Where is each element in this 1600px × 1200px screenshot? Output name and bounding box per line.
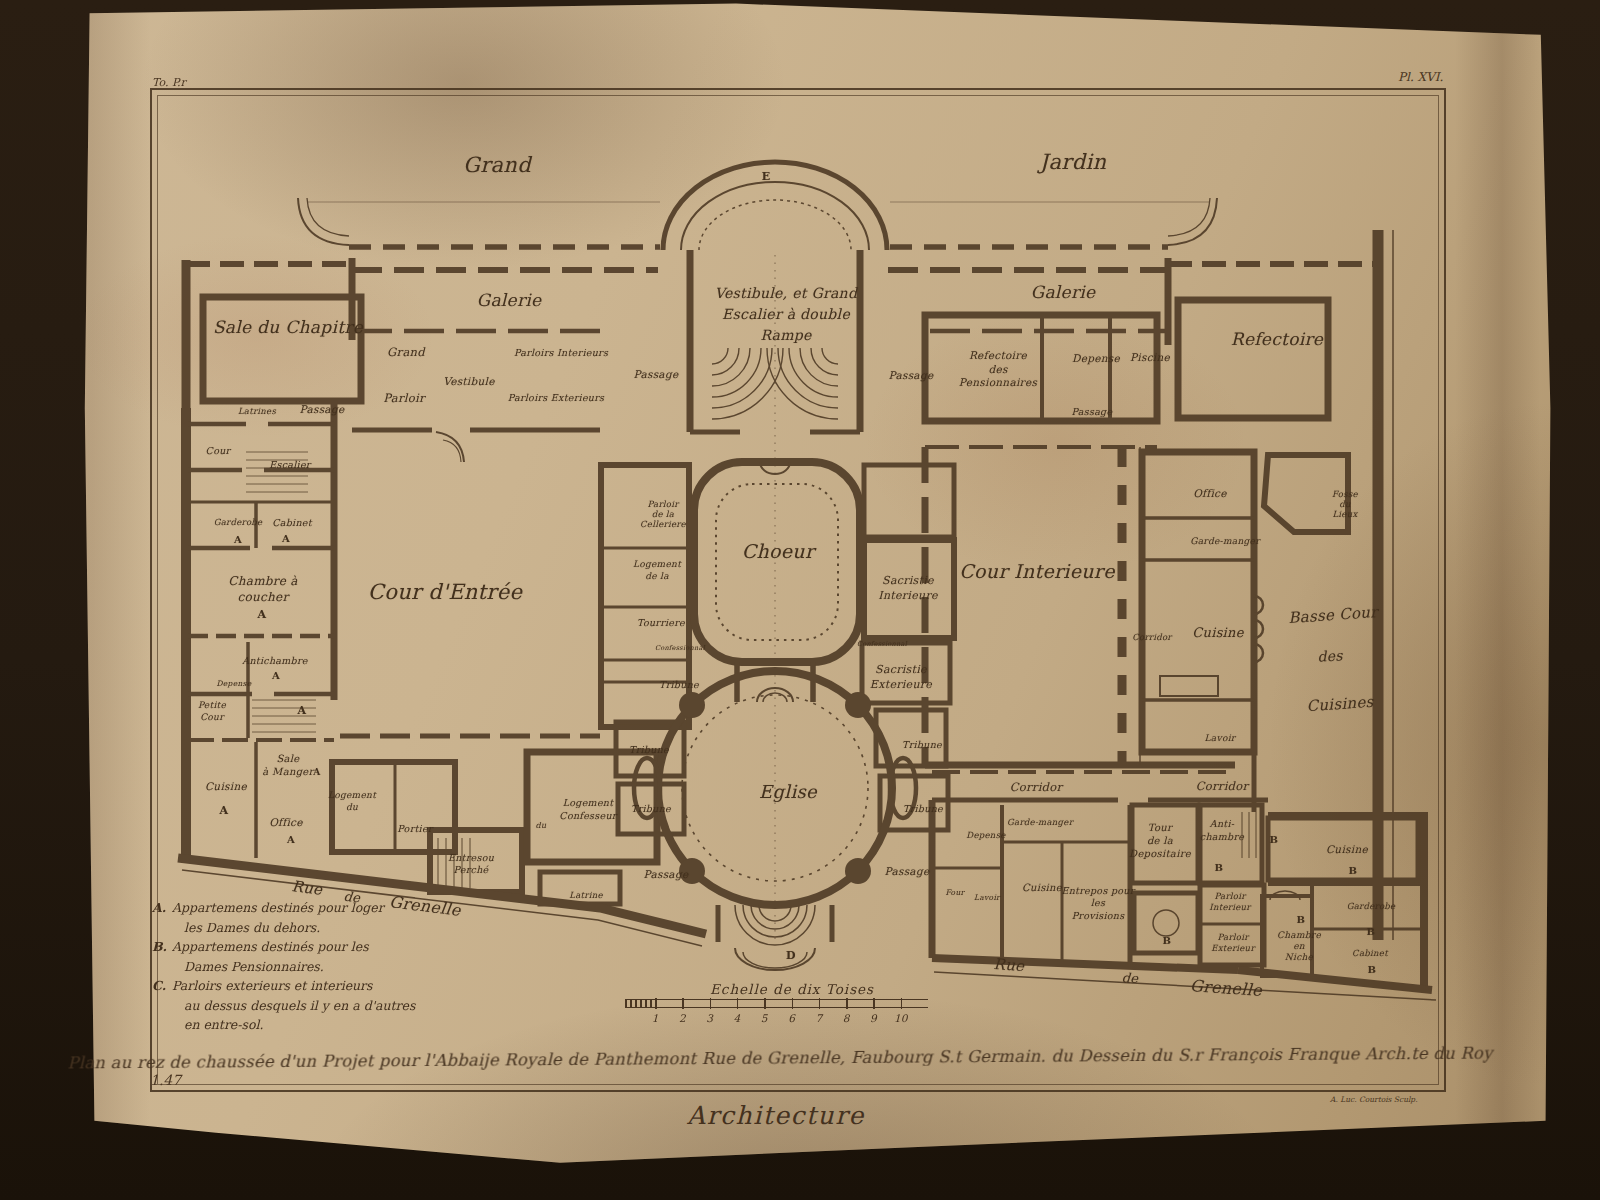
plan-label-grand: Grand (463, 153, 531, 177)
plan-label-corridor: Corridor (1196, 779, 1249, 793)
legend-item-b: B.Appartemens destinés pour lesDames Pen… (152, 937, 482, 976)
plan-label-anti-chambre: Anti- chambre (1200, 817, 1244, 844)
plan-label-parloirs-interieurs: Parloirs Interieurs (514, 347, 608, 358)
plan-label-des: des (1317, 647, 1343, 665)
plan-label-parloir-exterieur: Parloir Exterieur (1211, 932, 1255, 954)
plan-label-cuisine: Cuisine (1326, 843, 1368, 855)
plan-label-tourriere: Tourriere (637, 617, 685, 628)
plan-label-lavoir: Lavoir (1205, 733, 1236, 743)
scale-tick-number: 6 (788, 1012, 795, 1024)
legend-key: A. (152, 898, 172, 937)
plan-label-tour-de-la-depositaire: Tour de la Depositaire (1129, 821, 1191, 860)
plan-label-sacristie-interieure: Sacristie Interieure (878, 573, 938, 604)
plan-legend: A.Appartemens destinés pour logerles Dam… (152, 898, 482, 1035)
plan-label-refectoire: Refectoire (1231, 329, 1323, 349)
plan-label-latrine: Latrine (569, 890, 603, 900)
plan-label-escalier: Escalier (269, 459, 310, 470)
plan-label-a: A (258, 608, 267, 621)
legend-key: B. (152, 937, 172, 976)
plan-label-parloir-de-la-celleriere: Parloir de la Celleriere (640, 499, 686, 530)
plan-label-grand: Grand (387, 345, 425, 359)
plan-label-a: A (282, 533, 290, 544)
plan-label-a: A (313, 767, 320, 777)
plan-label-vestibule: Vestibule (443, 375, 495, 387)
scale-tick (710, 998, 712, 1009)
plan-label-refectoire-des-pensionnaires: Refectoire des Pensionnaires (959, 349, 1037, 390)
plan-label-tribune: Tribune (902, 739, 942, 750)
scale-tick-number: 4 (734, 1012, 741, 1024)
scale-tick-number: 1 (652, 1012, 659, 1024)
plan-label-vestibule-et-grand-escalier-double-rampe: Vestibule, et Grand Escalier à double Ra… (715, 283, 857, 346)
plan-label-a: A (298, 704, 307, 717)
plan-label-jardin: Jardin (1040, 150, 1106, 174)
scale-bar-label: Echelle de dix Toises (710, 981, 874, 997)
plan-label-parloir-interieur: Parloir Interieur (1209, 891, 1250, 913)
plan-label-b: B (1367, 926, 1376, 937)
plan-label-logement-de-la: Logement de la (633, 559, 681, 582)
plan-label-fosse-du-lieux: Fosse du Lieux (1332, 489, 1358, 520)
scale-tick (655, 998, 657, 1009)
plan-label-b: B (1368, 964, 1377, 975)
plan-label-petite-cour: Petite Cour (198, 700, 226, 723)
plan-label-confessionnal: Confessionnal (857, 640, 907, 648)
plan-label-depense: Depense (217, 679, 252, 688)
scale-tick (901, 998, 903, 1009)
plan-label-b: B (1297, 914, 1306, 925)
plan-label-office: Office (269, 816, 303, 828)
plan-label-sale-du-chapitre: Sale du Chapitre (213, 317, 363, 337)
scale-tick-number: 8 (843, 1012, 850, 1024)
plan-label-passage: Passage (644, 868, 689, 880)
plan-label-a: A (220, 804, 229, 817)
plan-label-b: B (1163, 935, 1172, 946)
plan-label-office: Office (1193, 487, 1227, 499)
plan-label-du: du (536, 821, 547, 830)
page-number: 1.47 (150, 1072, 181, 1088)
plan-label-galerie: Galerie (477, 290, 542, 310)
plan-label-latrines: Latrines (238, 406, 276, 416)
plan-label-a: A (234, 534, 242, 545)
scale-bar-subdivisions (625, 1000, 655, 1007)
plan-label-rue: Rue (993, 955, 1025, 975)
scale-tick-number: 7 (815, 1012, 822, 1024)
scale-bar: 12345678910 (625, 999, 928, 1008)
legend-item-c: C.Parloirs exterieurs et interieursau de… (152, 976, 482, 1035)
plan-label-chambre-coucher: Chambre à coucher (228, 573, 298, 605)
plan-label-garde-manger: Garde-manger (1190, 536, 1260, 546)
plan-label-entresou-perch: Entresou Perché (448, 852, 494, 877)
plan-label-cuisine: Cuisine (1192, 625, 1243, 640)
plan-label-corridor: Corridor (1132, 632, 1172, 642)
plan-label-garde-manger: Garde-manger (1007, 817, 1073, 827)
plan-label-parloir: Parloir (383, 391, 424, 405)
scale-tick (792, 998, 794, 1009)
plan-label-b: B (1270, 834, 1279, 845)
plan-label-entrepos-pour-les-provisions: Entrepos pour les Provisions (1061, 885, 1134, 922)
section-title: Architecture (687, 1101, 865, 1130)
scale-tick (819, 998, 821, 1009)
plan-label-cabinet: Cabinet (1352, 948, 1388, 958)
plan-label-garderobe: Garderobe (214, 517, 263, 527)
plan-label-tribune: Tribune (631, 803, 671, 814)
legend-text: Parloirs exterieurs et interieursau dess… (172, 976, 415, 1035)
plan-label-d: D (786, 949, 796, 962)
plan-label-e: E (762, 170, 771, 183)
plan-label-garderobe: Garderobe (1347, 901, 1396, 911)
legend-item-a: A.Appartemens destinés pour logerles Dam… (152, 898, 482, 937)
tome-reference: To. P.r (152, 76, 186, 89)
scale-tick-number: 10 (894, 1012, 907, 1024)
plan-label-cour-d-entr-e: Cour d'Entrée (368, 580, 522, 604)
plan-label-b: B (1215, 862, 1224, 873)
plan-label-depense: Depense (1072, 352, 1120, 364)
legend-key: C. (152, 976, 172, 1035)
plan-label-sacristie-exterieure: Sacristie Exterieure (870, 662, 932, 693)
plan-label-cabinet: Cabinet (272, 517, 312, 528)
scale-tick-number: 3 (706, 1012, 713, 1024)
scale-tick (846, 998, 848, 1009)
scale-tick-number: 9 (870, 1012, 877, 1024)
plan-label-tribune: Tribune (659, 679, 699, 690)
plan-label-a: A (272, 670, 280, 681)
plan-label-a: A (287, 834, 295, 845)
plan-label-tribune: Tribune (903, 803, 943, 814)
plan-label-b: B (1349, 865, 1358, 876)
plan-label-choeur: Choeur (742, 540, 815, 562)
plan-label-eglise: Eglise (759, 781, 817, 802)
plan-label-sale-manger: Sale à Manger (262, 753, 313, 778)
plan-label-passage: Passage (885, 865, 930, 877)
plan-label-passage: Passage (300, 403, 345, 415)
plan-label-corridor: Corridor (1010, 780, 1063, 794)
plan-label-passage: Passage (889, 369, 934, 381)
scale-tick-number: 5 (761, 1012, 768, 1024)
scale-tick (764, 998, 766, 1009)
plan-label-antichambre: Antichambre (242, 655, 308, 666)
plan-label-confessionnal: Confessionnal (655, 644, 705, 652)
plan-label-chambre-en-niche: Chambre en Niche (1277, 930, 1321, 962)
plan-label-passage: Passage (1072, 406, 1113, 417)
plan-label-piscine: Piscine (1130, 351, 1170, 363)
plan-label-logement-confesseur: Logement Confesseur (559, 797, 616, 823)
plan-label-parloirs-exterieurs: Parloirs Exterieurs (508, 392, 605, 403)
legend-text: Appartemens destinés pour logerles Dames… (172, 898, 384, 937)
plan-label-de: de (1121, 970, 1139, 986)
plan-label-four: Four (946, 888, 965, 897)
legend-text: Appartemens destinés pour lesDames Pensi… (172, 937, 369, 976)
plan-label-lavoir: Lavoir (974, 893, 1000, 902)
plan-label-tribune: Tribune (629, 744, 669, 755)
plan-label-cuisine: Cuisine (1022, 882, 1062, 893)
plan-label-depense: Depense (966, 830, 1005, 840)
plan-label-passage: Passage (634, 368, 679, 380)
scale-tick (873, 998, 875, 1009)
plate-number: Pl. XVI. (1398, 70, 1443, 84)
plan-label-cour-interieure: Cour Interieure (959, 560, 1114, 582)
plan-label-portier: Portier (397, 823, 432, 834)
engraver-credit: A. Luc. Courtois Sculp. (1330, 1095, 1418, 1104)
plan-label-galerie: Galerie (1031, 282, 1096, 302)
photographed-engraving: To. P.r Pl. XVI. 1.47 A. Luc. Courtois S… (0, 0, 1600, 1200)
scale-tick (682, 998, 684, 1009)
plan-label-cuisine: Cuisine (205, 780, 247, 792)
scale-tick-number: 2 (679, 1012, 686, 1024)
plan-label-logement-du: Logement du (328, 790, 376, 813)
plan-label-rue: Rue (291, 877, 324, 899)
plan-label-cour: Cour (206, 445, 231, 456)
scale-tick (737, 998, 739, 1009)
